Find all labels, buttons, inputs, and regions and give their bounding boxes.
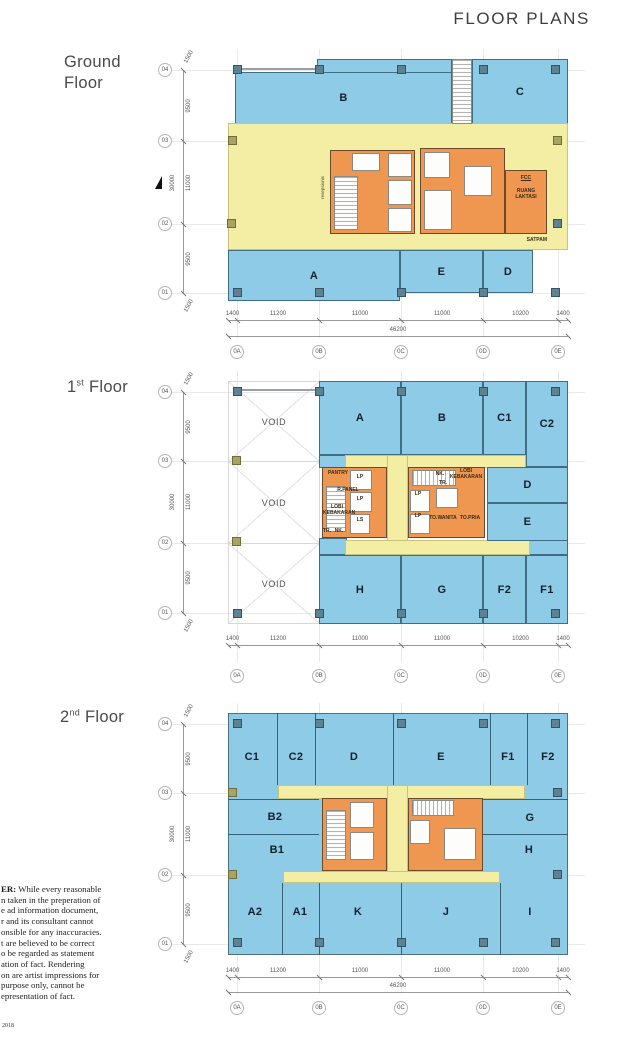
room-label-r-panel: R.PANEL	[334, 487, 362, 493]
column-marker	[479, 938, 488, 947]
lift-box	[350, 832, 374, 860]
lift-box	[352, 153, 380, 171]
zone-first-b: B	[401, 381, 483, 455]
axis-bubble: 01	[158, 937, 172, 951]
lift-box	[424, 190, 452, 230]
zone-label: D	[523, 479, 531, 491]
zone-label-second-a1: A1	[293, 906, 308, 918]
floor-label-second: 2nd Floor	[60, 707, 124, 728]
lift-box	[410, 820, 430, 844]
dim-label: 10200	[512, 636, 529, 642]
void-label: VOID	[262, 579, 286, 589]
dim-label: 9500	[186, 420, 192, 433]
zone-label-second-g: G	[526, 812, 535, 824]
zone-label: G	[438, 584, 447, 596]
dim-label: 1500	[183, 50, 195, 65]
axis-bubble: 02	[158, 536, 172, 550]
axis-bubble: 0E	[551, 669, 565, 683]
axis-bubble: 04	[158, 385, 172, 399]
axis-bubble: 0C	[394, 345, 408, 359]
column-marker	[553, 788, 562, 797]
dim-label: 11000	[352, 311, 368, 317]
dim-line	[183, 724, 184, 944]
zone-divider	[277, 713, 278, 785]
dim-label: 10200	[512, 311, 529, 317]
column-marker	[397, 719, 406, 728]
room-label-nk: NK.	[433, 471, 447, 477]
dim-label: 1500	[183, 372, 195, 387]
room-label-tr: TR.	[436, 480, 450, 486]
column-marker	[397, 288, 406, 297]
corridor-bottom	[345, 540, 530, 555]
zone-ground-d: D	[483, 250, 533, 293]
column-marker	[479, 65, 488, 74]
zone-label-second-d: D	[350, 751, 358, 763]
room-label-fcc: FCC	[505, 175, 547, 181]
zone-divider	[282, 883, 283, 955]
column-marker	[315, 387, 324, 396]
axis-bubble: 0D	[476, 345, 490, 359]
zone-divider	[527, 713, 528, 785]
dim-label-total: 46200	[390, 983, 407, 989]
dim-label: 11000	[352, 636, 368, 642]
axis-bubble: 03	[158, 134, 172, 148]
zone-label-second-j: J	[443, 906, 450, 918]
axis-bubble: 03	[158, 454, 172, 468]
dim-label: 11000	[352, 968, 368, 974]
zone-label-second-f1: F1	[501, 751, 515, 763]
dim-label: 9500	[186, 99, 192, 112]
dim-label: 1400	[556, 968, 569, 974]
column-marker	[233, 387, 242, 396]
zone-first-e: E	[487, 503, 568, 541]
dim-line	[228, 336, 568, 337]
dim-label: 1400	[556, 636, 569, 642]
stair-box	[334, 176, 358, 230]
column-marker	[479, 609, 488, 618]
axis-bubble: 02	[158, 217, 172, 231]
zone-divider	[228, 834, 319, 835]
zone-label: A	[356, 412, 364, 424]
dim-label-total: 30000	[170, 174, 176, 191]
dim-label-total: 30000	[170, 826, 176, 843]
zone-divider	[393, 713, 394, 785]
floor-plans-sheet: FLOOR PLANS Ground Floor 1st Floor 2nd F…	[0, 0, 633, 1037]
column-marker	[233, 609, 242, 618]
column-marker	[551, 609, 560, 618]
zone-label-second-h: H	[525, 844, 533, 856]
dim-label: 11200	[270, 636, 286, 642]
zone-first-e-connector	[528, 540, 568, 555]
axis-bubble: 01	[158, 286, 172, 300]
column-marker	[232, 456, 241, 465]
lift-box	[350, 802, 374, 828]
column-marker	[397, 65, 406, 74]
axis-bubble: 0C	[394, 1001, 408, 1015]
column-marker	[553, 870, 562, 879]
column-marker	[551, 288, 560, 297]
zone-label: C1	[497, 412, 512, 424]
column-marker	[315, 65, 324, 74]
dim-line	[183, 392, 184, 613]
lift-box	[388, 153, 412, 177]
column-marker	[227, 219, 236, 228]
year-note: 2018	[2, 1023, 14, 1029]
axis-bubble: 0B	[312, 1001, 326, 1015]
zone-label-second-e: E	[437, 751, 445, 763]
dim-label: 9500	[186, 752, 192, 765]
zone-label: E	[524, 516, 532, 528]
column-marker	[551, 938, 560, 947]
column-marker	[551, 387, 560, 396]
zone-label-second-c2: C2	[289, 751, 304, 763]
axis-bubble: 0A	[230, 345, 244, 359]
zone-label-second-c1: C1	[245, 751, 260, 763]
axis-bubble: 02	[158, 868, 172, 882]
dim-label: 11000	[434, 311, 450, 317]
void-label: VOID	[262, 417, 286, 427]
beam-line	[237, 68, 319, 70]
column-marker	[233, 938, 242, 947]
column-marker	[315, 719, 324, 728]
floor-label-first: 1st Floor	[67, 377, 128, 398]
column-marker	[315, 288, 324, 297]
dim-label: 9500	[186, 571, 192, 584]
zone-divider	[228, 799, 319, 800]
dim-label: 1500	[183, 950, 195, 965]
column-marker	[228, 136, 237, 145]
dim-line	[228, 645, 568, 646]
dim-label: 10200	[512, 968, 529, 974]
column-marker	[479, 288, 488, 297]
room-label-ruang-laktasi: RUANG LAKTASI	[511, 188, 541, 200]
dim-label: 1400	[226, 636, 239, 642]
lift-box	[388, 180, 412, 205]
dim-label: 1400	[556, 311, 569, 317]
column-marker	[397, 609, 406, 618]
corridor-bottom	[283, 871, 500, 883]
zone-label: F2	[498, 584, 512, 596]
column-marker	[479, 719, 488, 728]
zone-first-c1: C1	[483, 381, 526, 455]
axis-bubble: 0E	[551, 345, 565, 359]
dim-label: 1500	[183, 704, 195, 719]
dim-line	[183, 70, 184, 293]
dim-line	[228, 977, 568, 978]
axis-bubble: 01	[158, 606, 172, 620]
lift-box	[424, 152, 450, 178]
zone-label: E	[438, 266, 446, 278]
zone-label-second-b2: B2	[268, 811, 283, 823]
column-marker	[315, 609, 324, 618]
axis-bubble: 0D	[476, 1001, 490, 1015]
dim-label: 1500	[183, 619, 195, 634]
north-arrow-icon	[155, 176, 162, 189]
zone-first-f1: F1	[526, 555, 568, 624]
column-marker	[397, 387, 406, 396]
axis-bubble: 0B	[312, 669, 326, 683]
column-marker	[228, 870, 237, 879]
column-marker	[228, 788, 237, 797]
room-label-to-pria: TO.PRIA	[457, 515, 483, 521]
zone-divider	[490, 713, 491, 785]
axis-bubble: 03	[158, 786, 172, 800]
zone-first-c2: C2	[526, 381, 568, 467]
dim-label: 1500	[183, 299, 195, 314]
column-marker	[233, 288, 242, 297]
column-marker	[553, 136, 562, 145]
stair-box	[412, 800, 454, 816]
lift-box	[350, 492, 372, 512]
zone-label: D	[504, 266, 512, 278]
dim-label: 11000	[186, 826, 192, 842]
lift-box	[388, 208, 412, 232]
room-label-lobi-kebakaran: LOBI KEBAKARAN	[449, 468, 483, 480]
zone-first-f2: F2	[483, 555, 526, 624]
dim-label-total: 30000	[170, 494, 176, 511]
zone-label: H	[356, 584, 364, 596]
zone-label-second-f2: F2	[541, 751, 555, 763]
room-label-lp: LP	[408, 513, 428, 519]
lift-box	[436, 488, 458, 508]
room-label-lp: LP	[408, 491, 428, 497]
beam-line	[237, 389, 319, 391]
room-label-resepsionis: resepsionis	[320, 165, 325, 210]
dim-label: 11000	[186, 174, 192, 190]
axis-bubble: 0B	[312, 345, 326, 359]
axis-bubble: 0A	[230, 1001, 244, 1015]
zone-label-second-k: K	[354, 906, 362, 918]
stair-box	[326, 810, 346, 860]
column-marker	[233, 719, 242, 728]
lift-box	[444, 828, 476, 860]
column-marker	[551, 719, 560, 728]
axis-bubble: 04	[158, 717, 172, 731]
zone-label: A	[310, 270, 318, 282]
zone-label: B	[438, 412, 446, 424]
room-label-to-wanita: TO.WANITA	[429, 515, 457, 521]
column-marker	[232, 537, 241, 546]
zone-ground-a: A	[228, 250, 400, 301]
zone-first-a: A	[319, 381, 401, 455]
dim-label: 11200	[270, 311, 286, 317]
dim-label: 11000	[434, 968, 450, 974]
zone-first-h: H	[319, 555, 401, 624]
zone-divider	[483, 834, 568, 835]
void-area: VOID	[228, 461, 320, 544]
room-label-lp: LP	[349, 496, 371, 502]
disclaimer-bold: ER:	[1, 884, 16, 894]
axis-bubble: 0E	[551, 1001, 565, 1015]
dim-label: 11000	[434, 636, 450, 642]
dim-label: 1400	[226, 968, 239, 974]
room-label-nk: NK.	[332, 528, 346, 534]
dim-label: 11000	[186, 494, 192, 510]
zone-label-second-a2: A2	[248, 906, 263, 918]
column-marker	[233, 65, 242, 74]
column-marker	[397, 938, 406, 947]
column-marker	[479, 387, 488, 396]
zone-first-h-connector	[319, 538, 347, 555]
floor-label-ground: Ground Floor	[64, 52, 121, 95]
dim-label: 9500	[186, 903, 192, 916]
dim-label: 11200	[270, 968, 286, 974]
room-label-ls: LS	[351, 517, 369, 523]
room-label-lp: LP	[349, 474, 371, 480]
corridor-center	[387, 785, 408, 883]
stair-shaft	[452, 59, 472, 124]
zone-label: C2	[540, 418, 555, 430]
zone-ground-e: E	[400, 250, 483, 293]
zone-divider	[500, 883, 501, 955]
zone-label-second-b1: B1	[270, 844, 285, 856]
axis-bubble: 0A	[230, 669, 244, 683]
room-label-lobi-kebakaran: LOBI KEBAKARAN	[323, 504, 351, 516]
zone-first-g: G	[401, 555, 483, 624]
lift-box	[464, 166, 492, 196]
disclaimer: ER: While every reasonable n taken in th…	[1, 884, 113, 1002]
axis-bubble: 04	[158, 63, 172, 77]
dim-label: 1400	[226, 311, 239, 317]
zone-label: B	[339, 92, 347, 104]
axis-bubble: 0C	[394, 669, 408, 683]
zone-divider	[483, 799, 568, 800]
void-label: VOID	[262, 498, 286, 508]
zone-label: C	[516, 86, 524, 98]
dim-label: 9500	[186, 252, 192, 265]
column-marker	[551, 65, 560, 74]
zone-ground-b: B	[235, 72, 452, 124]
column-marker	[315, 938, 324, 947]
zone-label: F1	[540, 584, 554, 596]
zone-ground-b-notch	[317, 59, 452, 73]
zone-first-d: D	[487, 467, 568, 503]
axis-bubble: 0D	[476, 669, 490, 683]
dim-label-total: 46200	[390, 327, 407, 333]
dim-line	[228, 320, 568, 321]
dim-line	[228, 992, 568, 993]
zone-label-second-i: I	[528, 906, 531, 918]
room-label-satpam: SATPAM	[503, 237, 547, 243]
page-title: FLOOR PLANS	[440, 9, 590, 29]
column-marker	[553, 219, 562, 228]
